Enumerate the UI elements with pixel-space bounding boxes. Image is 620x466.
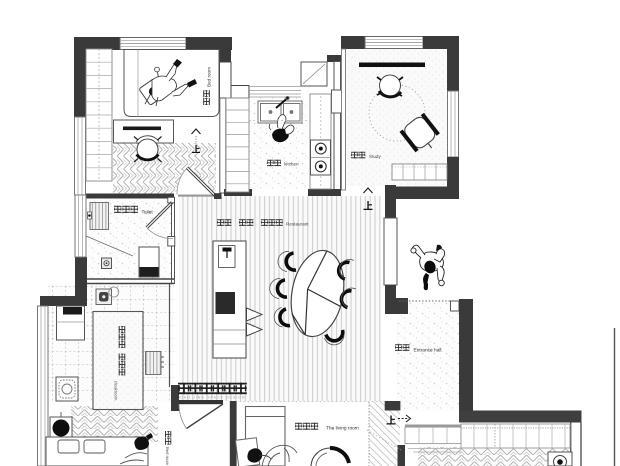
svg-text:Study: Study xyxy=(369,154,381,159)
svg-text:Bed room: Bed room xyxy=(207,67,212,87)
svg-text:Bed room: Bed room xyxy=(165,447,170,466)
svg-text:The living room: The living room xyxy=(326,426,359,432)
svg-text:kitchen: kitchen xyxy=(284,162,299,167)
svg-text:cloakroom: cloakroom xyxy=(114,381,119,401)
svg-text:Toilet: Toilet xyxy=(142,210,154,216)
svg-text:XIAO JING SPACE DESIGN: XIAO JING SPACE DESIGN xyxy=(179,395,246,399)
svg-text:Entrance hall: Entrance hall xyxy=(414,347,442,353)
svg-text:Restaurant: Restaurant xyxy=(286,222,309,227)
